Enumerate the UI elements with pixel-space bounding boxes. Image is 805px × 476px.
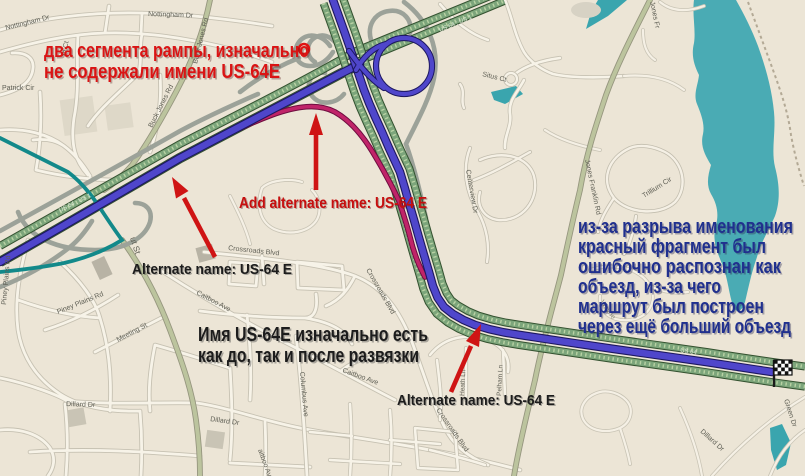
svg-text:Dillard Dr: Dillard Dr — [66, 401, 96, 409]
svg-text:как до, так и после развязки: как до, так и после развязки — [198, 344, 419, 367]
svg-text:Alternate name: US-64 E: Alternate name: US-64 E — [132, 262, 292, 278]
svg-text:Add alternate name: US-64 E: Add alternate name: US-64 E — [239, 195, 427, 212]
svg-text:Alternate name: US-64 E: Alternate name: US-64 E — [397, 393, 555, 409]
svg-text:Имя US-64E изначально есть: Имя US-64E изначально есть — [198, 323, 428, 346]
svg-text:Patrick Cir: Patrick Cir — [2, 85, 35, 92]
svg-text:не содержали имени US-64E: не содержали имени US-64E — [44, 60, 280, 83]
svg-text:два сегмента рампы, изначально: два сегмента рампы, изначально — [44, 39, 309, 62]
svg-text:через ещё больший объезд: через ещё больший объезд — [578, 315, 791, 338]
